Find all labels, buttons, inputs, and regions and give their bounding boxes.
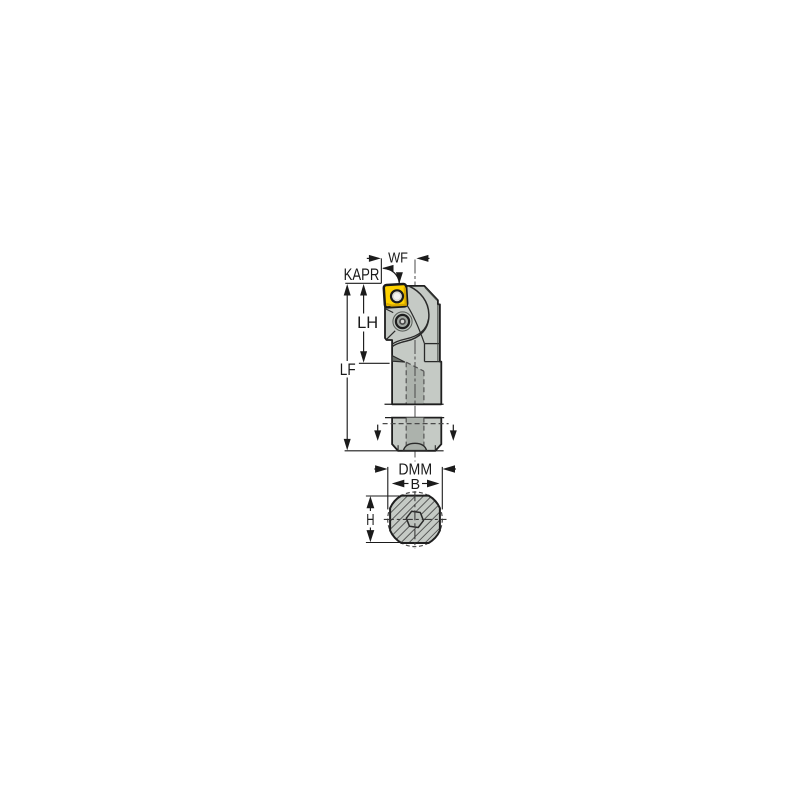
svg-text:DMM: DMM bbox=[398, 462, 432, 479]
svg-text:WF: WF bbox=[388, 249, 408, 266]
svg-text:H: H bbox=[366, 512, 374, 529]
svg-text:LF: LF bbox=[340, 361, 356, 379]
svg-text:KAPR: KAPR bbox=[344, 266, 380, 284]
svg-text:B: B bbox=[411, 477, 421, 493]
svg-text:LH: LH bbox=[357, 314, 378, 332]
